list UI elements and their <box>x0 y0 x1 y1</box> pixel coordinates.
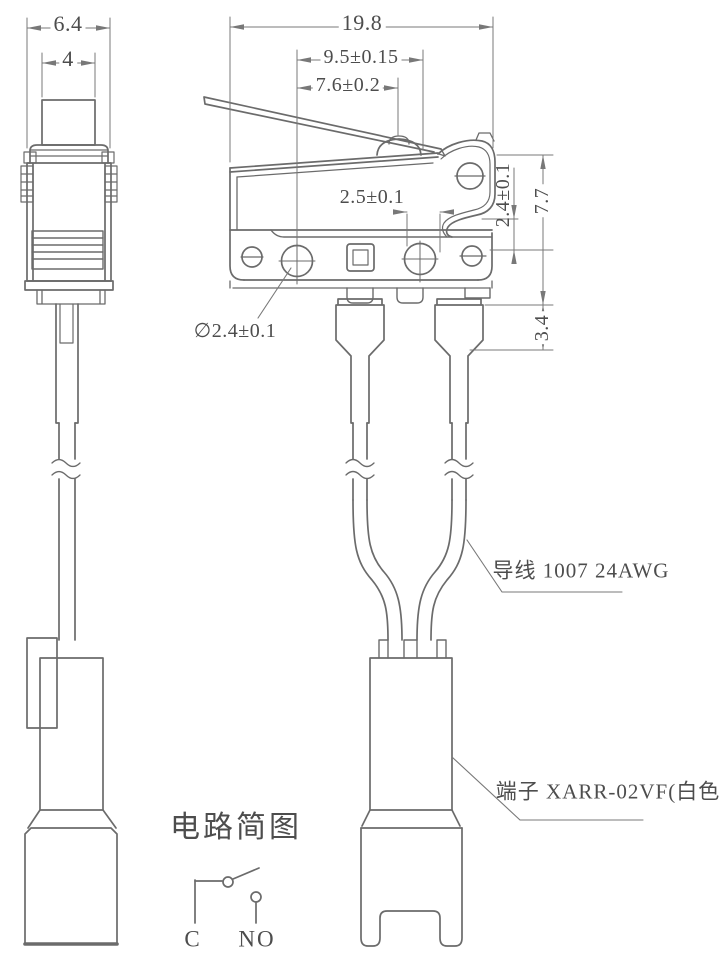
square-hole <box>347 244 374 271</box>
side-terminal <box>25 638 117 944</box>
dim-button-width-label: 4 <box>59 48 77 70</box>
dim-sleeve-height-label: 3.4 <box>532 312 552 345</box>
side-view <box>21 100 117 944</box>
dim-body-height-label: 7.7 <box>532 185 552 218</box>
front-wires <box>346 423 473 640</box>
dim-side-width-label: 6.4 <box>51 13 86 35</box>
dim-lever-pitch-label: 7.6±0.2 <box>313 75 383 95</box>
dim-right-offset-label: 2.4±0.1 <box>493 163 513 227</box>
dim-total-width-label: 19.8 <box>339 12 386 34</box>
side-body <box>27 163 111 281</box>
bottom-feet <box>347 288 490 303</box>
side-cap <box>30 145 108 163</box>
circuit-terminal-no-label: NO <box>238 928 275 951</box>
leader-lines <box>258 268 643 820</box>
drawing-canvas <box>0 0 720 973</box>
side-button <box>42 100 95 145</box>
circuit-title: 电路简图 <box>170 813 302 843</box>
side-sleeve <box>56 304 78 423</box>
switch-lever <box>233 868 259 879</box>
dimension-lines <box>27 17 553 350</box>
switch-body <box>230 153 492 288</box>
wire-spec-label: 导线 1007 24AWG <box>493 561 670 582</box>
circuit-terminal-c-label: C <box>184 928 201 951</box>
front-terminal <box>361 640 462 946</box>
contact-no <box>251 892 261 902</box>
dim-hole-pitch-label: 9.5±0.15 <box>321 47 402 67</box>
dim-hole-diameter-label: ∅2.4±0.1 <box>194 321 276 341</box>
side-wire <box>52 423 80 640</box>
technical-drawing-page: 6.4 4 19.8 9.5±0.15 7.6±0.2 2.5±0.1 ∅2.4… <box>0 0 720 973</box>
terminal-spec-label: 端子 XARR-02VF(白色) <box>496 782 720 803</box>
leader-hole-diameter <box>258 268 291 318</box>
circuit-symbol <box>195 868 261 923</box>
contact-common <box>223 877 233 887</box>
dim-slot-width-label: 2.5±0.1 <box>340 187 404 207</box>
mounting-holes <box>241 241 486 284</box>
side-plates <box>32 231 103 269</box>
mounting-ear <box>438 133 495 237</box>
front-sleeves <box>336 299 483 423</box>
lever-arm <box>204 97 445 156</box>
side-flange <box>25 281 113 290</box>
